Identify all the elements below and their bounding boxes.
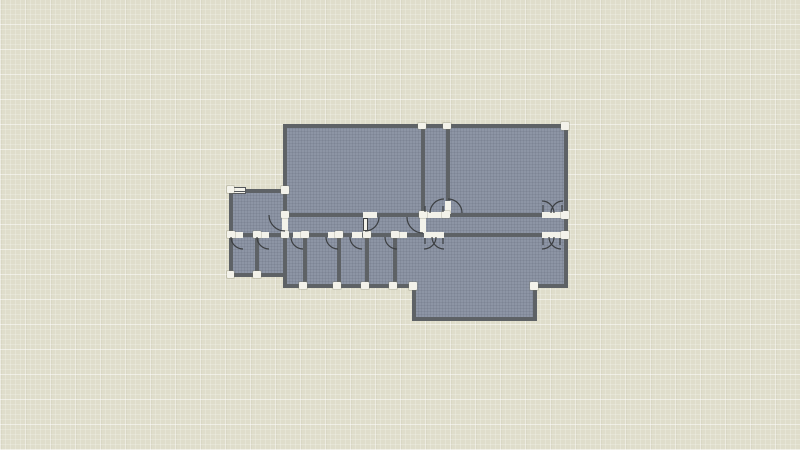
wall-main-right[interactable] [564,124,568,288]
node-v2-wall-a[interactable] [442,211,450,218]
floor-extension[interactable] [412,284,537,321]
door-room-3[interactable] [352,232,362,238]
wall-corridor-upper-seg3[interactable] [444,213,542,217]
door-corridor-divider[interactable] [420,217,426,233]
node-annex-left-wall-b[interactable] [227,231,235,238]
door-double-lower-right[interactable] [542,232,561,238]
node-divider2-bottom[interactable] [333,282,341,289]
node-divider2-top[interactable] [335,231,343,238]
door-double-upper-left[interactable] [424,212,444,218]
node-divider4-top[interactable] [391,231,399,238]
node-annex-bottom-left[interactable] [227,271,234,278]
node-divider1-bottom[interactable] [299,282,307,289]
wall-corridor-lower-seg7[interactable] [444,233,542,237]
door-double-upper-right[interactable] [542,212,563,218]
wall-main-bottom-right[interactable] [533,284,568,288]
wall-corridor-upper-seg1[interactable] [287,213,363,217]
node-annex-divider-bottom[interactable] [253,271,261,278]
wall-room-divider-3[interactable] [365,237,369,284]
door-double-lower-left[interactable] [424,232,444,238]
node-right-wall-b[interactable] [561,231,569,239]
wall-main-left-lower[interactable] [283,231,287,288]
node-main-left-wall-b[interactable] [281,231,289,238]
wall-room-divider-2[interactable] [337,237,341,284]
plan-canvas[interactable] [0,0,800,450]
node-divider4-bottom[interactable] [389,282,397,289]
node-annex-top-left[interactable] [227,186,234,193]
wall-room-divider-1[interactable] [303,237,307,284]
wall-main-left-upper[interactable] [283,124,287,215]
node-top-right-corner[interactable] [561,122,569,130]
window-annex-top[interactable] [232,187,246,194]
wall-vertical-1[interactable] [421,128,425,213]
wall-extension-bottom[interactable] [412,317,537,321]
wall-vertical-2[interactable] [446,128,450,201]
node-annex-divider-top[interactable] [253,231,261,238]
node-wall-a-start[interactable] [281,211,289,218]
node-top-1[interactable] [418,123,426,129]
node-top-2[interactable] [443,123,451,129]
wall-corridor-upper-seg2[interactable] [377,213,424,217]
wall-corridor-lower-seg6[interactable] [407,233,424,237]
floor-main[interactable] [283,124,568,288]
node-extension-right[interactable] [530,282,538,290]
node-annex-top-junction[interactable] [281,186,289,194]
wall-annex-divider[interactable] [255,237,259,273]
node-divider3-top[interactable] [363,231,371,238]
wall-room-divider-4[interactable] [393,237,397,284]
node-extension-left[interactable] [409,282,417,290]
node-divider1-top[interactable] [301,231,309,238]
door-leaf [363,218,368,231]
node-divider3-bottom[interactable] [361,282,369,289]
node-v1-wall-a[interactable] [419,211,427,218]
node-right-wall-a[interactable] [561,211,569,219]
